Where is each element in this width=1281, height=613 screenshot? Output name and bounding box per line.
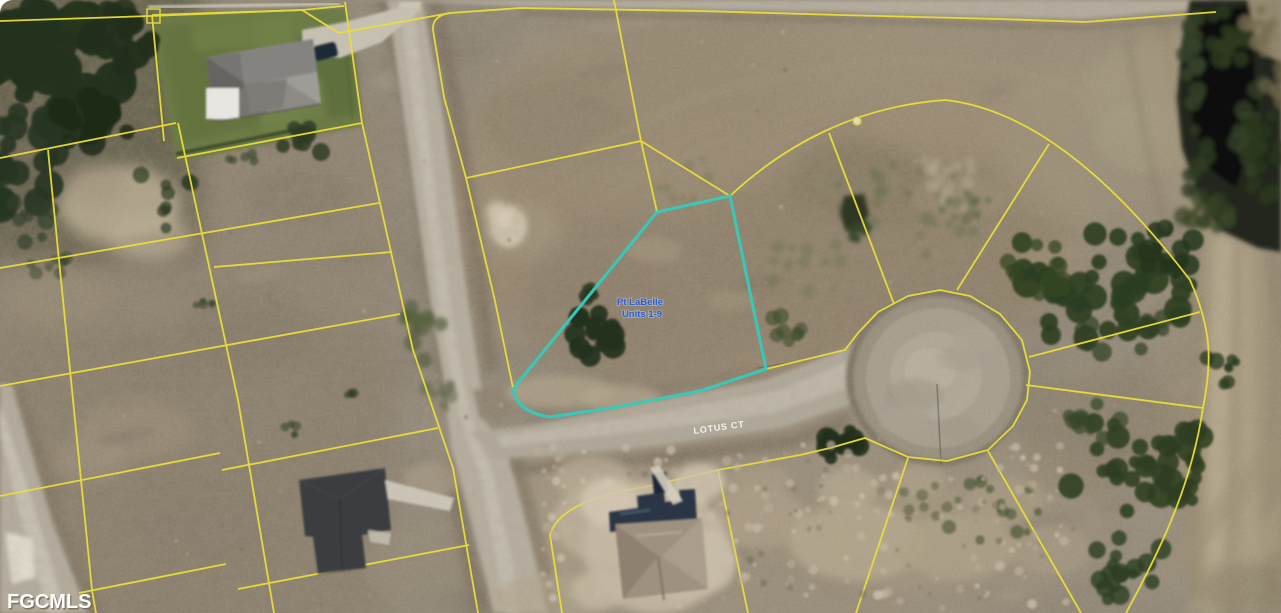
svg-text:Pt LaBelle: Pt LaBelle — [617, 297, 663, 308]
svg-text:Units 1-9: Units 1-9 — [622, 309, 662, 320]
svg-text:FGCMLS: FGCMLS — [7, 591, 91, 613]
